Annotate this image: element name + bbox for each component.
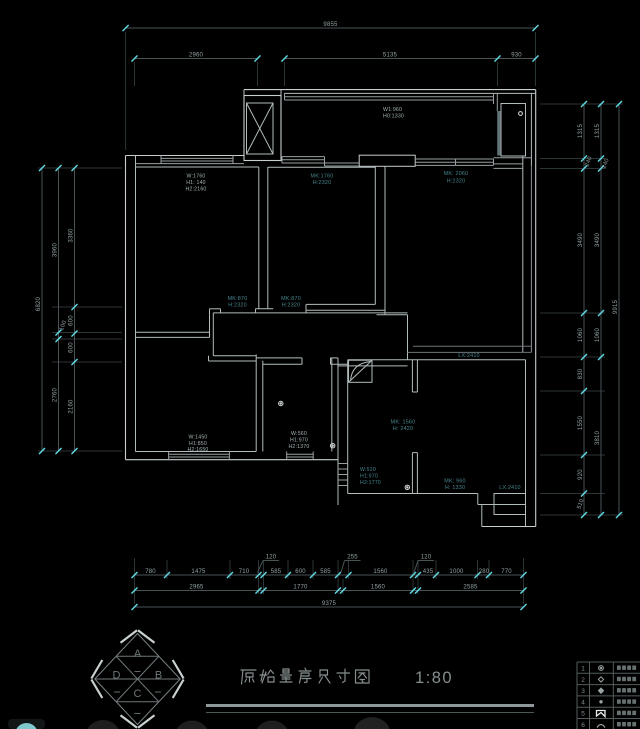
- svg-text:435: 435: [423, 569, 434, 575]
- svg-text:W:560: W:560: [291, 431, 307, 437]
- svg-text:830: 830: [578, 368, 584, 379]
- svg-text:B: B: [155, 670, 162, 682]
- svg-text:H2:1370: H2:1370: [288, 444, 309, 450]
- svg-text:MK: 2060: MK: 2060: [444, 171, 469, 177]
- svg-text:2960: 2960: [189, 53, 204, 59]
- svg-text:6: 6: [581, 722, 585, 729]
- svg-text:280: 280: [479, 569, 490, 575]
- svg-text:A: A: [134, 648, 142, 660]
- svg-text:H:2320: H:2320: [228, 303, 247, 309]
- svg-text:W:1760: W:1760: [187, 174, 206, 180]
- svg-text:600: 600: [295, 569, 306, 575]
- svg-text:1060: 1060: [595, 327, 601, 342]
- svg-text:710: 710: [239, 569, 250, 575]
- svg-text:120: 120: [421, 555, 432, 561]
- svg-text:H1:970: H1:970: [290, 438, 308, 444]
- svg-text:MK:870: MK:870: [281, 296, 301, 302]
- svg-text:H2:1770: H2:1770: [360, 480, 381, 486]
- svg-text:MK:870: MK:870: [228, 296, 248, 302]
- svg-text:MK:1760: MK:1760: [311, 174, 334, 180]
- svg-text:H2:1650: H2:1650: [187, 447, 208, 453]
- svg-text:780: 780: [145, 569, 156, 575]
- svg-text:LX:2410: LX:2410: [499, 485, 520, 491]
- svg-text:MK: 1560: MK: 1560: [391, 420, 416, 426]
- svg-text:1:80: 1:80: [415, 669, 453, 687]
- svg-text:9855: 9855: [323, 22, 338, 28]
- svg-text:600: 600: [69, 342, 75, 353]
- svg-text:930: 930: [511, 53, 522, 59]
- svg-text:3490: 3490: [578, 232, 584, 247]
- svg-text:W:520: W:520: [360, 467, 376, 473]
- svg-text:5135: 5135: [383, 53, 398, 59]
- svg-text:H:2320: H:2320: [447, 179, 466, 185]
- svg-text:255: 255: [347, 555, 358, 561]
- svg-text:600: 600: [69, 315, 75, 326]
- svg-text:MK: 960: MK: 960: [444, 479, 465, 485]
- svg-text:3810: 3810: [595, 430, 601, 445]
- svg-text:C: C: [134, 688, 142, 700]
- svg-text:1060: 1060: [578, 327, 584, 342]
- svg-text:9915: 9915: [613, 299, 619, 314]
- svg-text:3: 3: [581, 688, 585, 695]
- svg-text:1770: 1770: [293, 585, 308, 591]
- svg-text:5: 5: [581, 711, 585, 718]
- svg-text:920: 920: [578, 469, 584, 480]
- svg-text:H1:970: H1:970: [360, 474, 378, 480]
- svg-text:H:2320: H:2320: [282, 303, 301, 309]
- svg-text:2: 2: [581, 677, 585, 684]
- svg-text:1000: 1000: [449, 569, 464, 575]
- svg-text:4: 4: [581, 699, 585, 706]
- svg-text:H0:1330: H0:1330: [383, 114, 404, 120]
- svg-text:H: 1330: H: 1330: [445, 485, 465, 491]
- svg-text:770: 770: [501, 569, 512, 575]
- svg-text:120: 120: [266, 555, 277, 561]
- svg-text:H1: 140: H1: 140: [186, 180, 206, 186]
- svg-text:3360: 3360: [69, 228, 75, 243]
- svg-text:1560: 1560: [371, 585, 386, 591]
- svg-text:1550: 1550: [578, 415, 584, 430]
- svg-text:2585: 2585: [463, 585, 478, 591]
- svg-text:6820: 6820: [36, 296, 42, 311]
- svg-text:1475: 1475: [191, 569, 206, 575]
- svg-text:2160: 2160: [69, 399, 75, 414]
- svg-text:1560: 1560: [373, 569, 388, 575]
- svg-text:LX:2410: LX:2410: [458, 353, 479, 359]
- svg-text:H2:2160: H2:2160: [185, 187, 206, 193]
- svg-text:1315: 1315: [595, 123, 601, 138]
- svg-text:H:2320: H:2320: [313, 180, 332, 186]
- svg-text:2965: 2965: [189, 585, 204, 591]
- svg-text:2760: 2760: [53, 387, 59, 402]
- svg-text:9375: 9375: [322, 601, 337, 607]
- svg-text:585: 585: [320, 569, 331, 575]
- svg-text:W1:960: W1:960: [383, 107, 402, 113]
- svg-text:3960: 3960: [53, 242, 59, 257]
- svg-text:W:1450: W:1450: [189, 435, 208, 441]
- svg-text:H: 2420: H: 2420: [393, 426, 413, 432]
- svg-text:D: D: [113, 670, 121, 682]
- svg-text:1315: 1315: [578, 123, 584, 138]
- svg-text:3490: 3490: [595, 232, 601, 247]
- svg-text:585: 585: [271, 569, 282, 575]
- svg-text:1: 1: [581, 666, 585, 673]
